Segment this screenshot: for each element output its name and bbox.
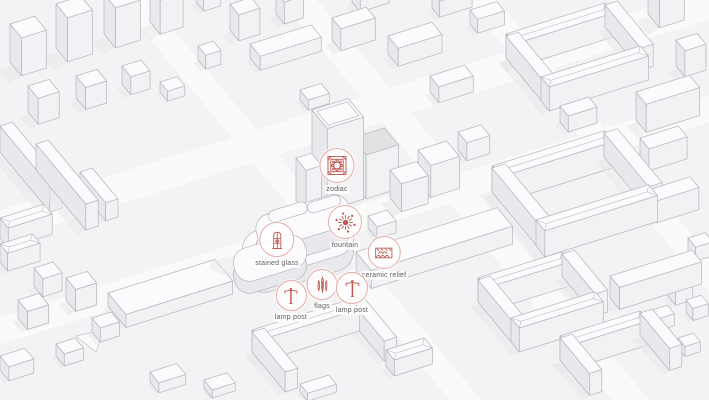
marker-label: lamp post [273,313,309,322]
fountain-icon [332,209,359,236]
marker-circle [336,272,368,304]
marker-circle [260,222,295,257]
marker-label: fountain [330,241,361,250]
marker-label: zodiac [324,185,349,194]
marker-fountain[interactable]: fountain [328,205,362,250]
marker-stained-glass[interactable]: stained glass [253,222,300,268]
marker-circle [328,205,362,239]
stained-glass-icon [264,227,290,253]
ceramic-relief-icon [371,240,397,266]
city-axonometric-drawing [0,0,709,400]
lamp-post-icon [340,276,365,301]
marker-zodiac[interactable]: zodiac [320,148,355,194]
marker-label: flags [312,302,332,311]
marker-circle [276,280,307,311]
flags-icon [310,273,334,297]
axonometric-city-map: zodiac fountain [0,0,709,400]
marker-lamp-post-right[interactable]: lamp post [334,272,370,315]
marker-lamp-post-left[interactable]: lamp post [273,280,309,322]
marker-circle [320,148,355,183]
lamp-post-icon [279,284,303,308]
marker-label: stained glass [253,259,300,268]
marker-circle [307,269,338,300]
zodiac-icon [324,152,351,179]
marker-label: lamp post [334,306,370,315]
marker-flags[interactable]: flags [307,269,338,311]
marker-circle [367,236,400,269]
